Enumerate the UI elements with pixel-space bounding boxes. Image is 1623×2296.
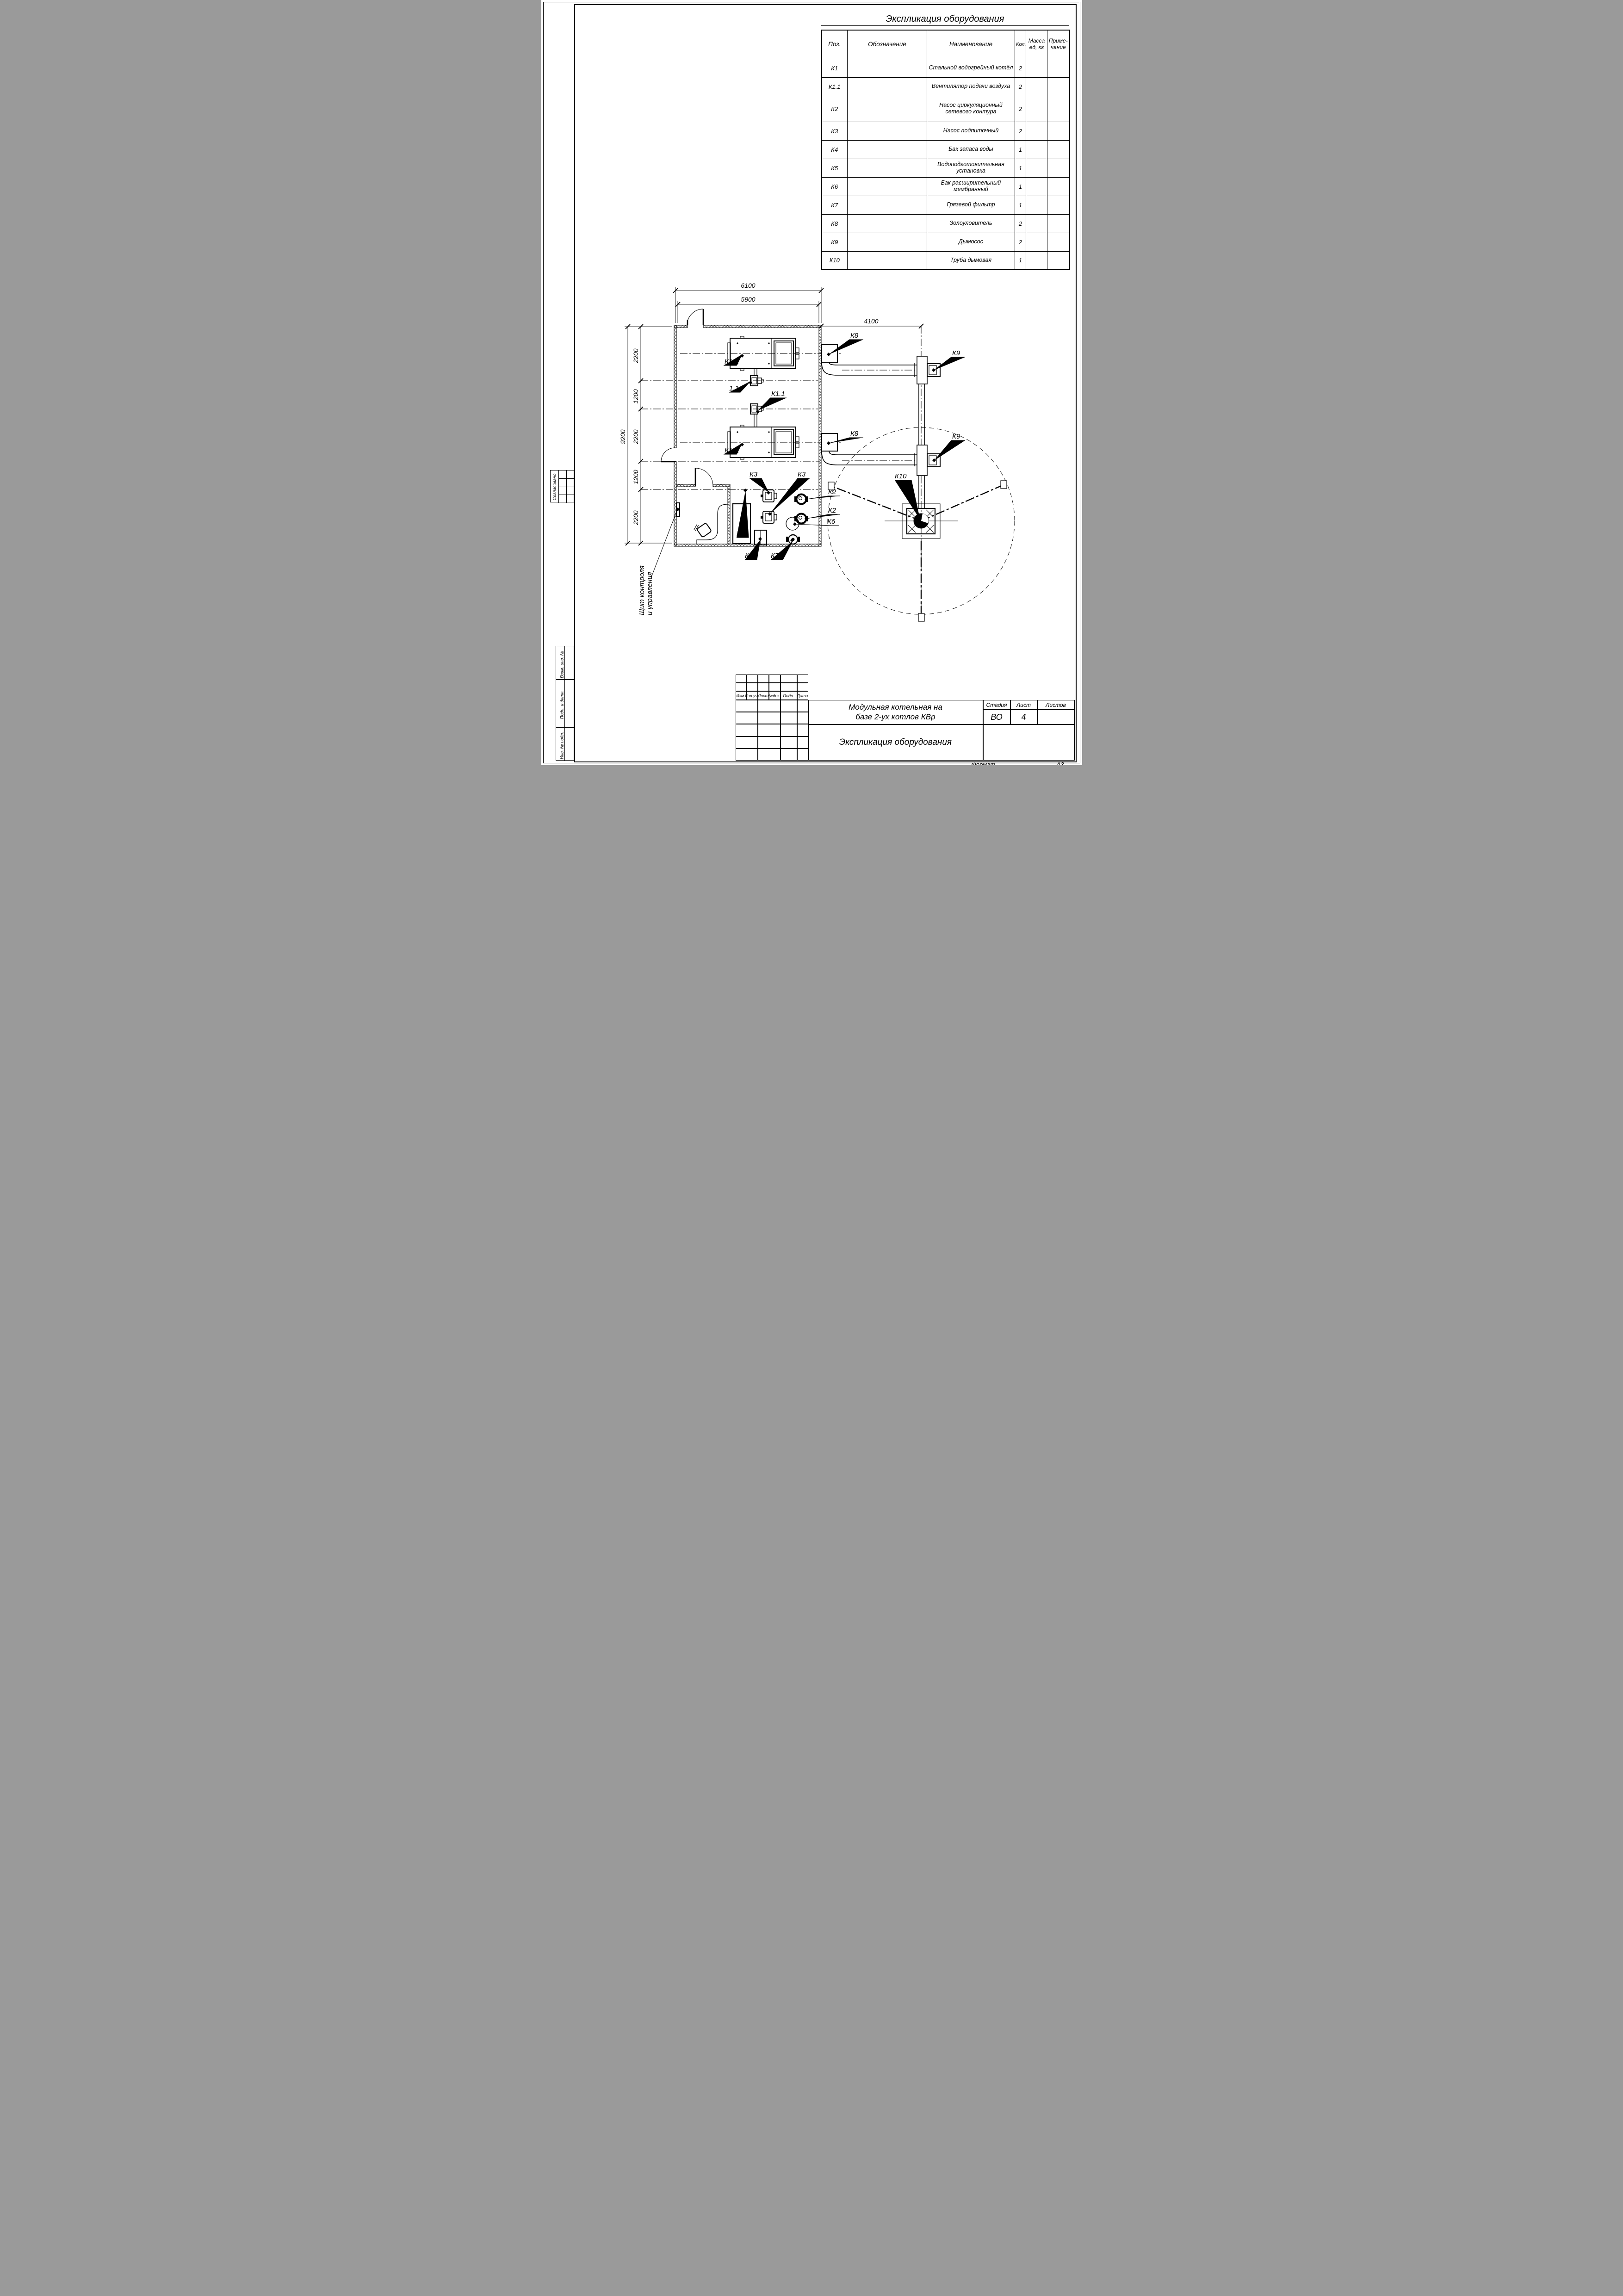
row-note [1047, 96, 1070, 122]
equipment-table-section: Экспликация оборудования Поз. Обозначени… [821, 14, 1069, 270]
table-row: К5Водоподготовительная установка1 [822, 159, 1070, 177]
drawing-sheet: 6100 5900 4100 9200 2200 1200 2200 1200 … [541, 0, 1082, 765]
table-row: К9Дымосос2 [822, 233, 1070, 251]
row-pos: К1 [822, 59, 848, 77]
row-pos: К8 [822, 214, 848, 233]
row-note [1047, 196, 1070, 214]
svg-text:Щит контроля: Щит контроля [638, 565, 646, 615]
smoke-exhauster-2 [917, 445, 940, 476]
smoke-exhauster-1 [917, 356, 940, 384]
row-designation [848, 251, 927, 270]
row-designation [848, 122, 927, 140]
row-pos: К6 [822, 177, 848, 196]
dim-6100: 6100 [741, 282, 755, 289]
partition-horizontal-right [713, 484, 730, 487]
row-mass [1026, 122, 1047, 140]
dim-seg1: 2200 [632, 348, 639, 363]
row-mass [1026, 140, 1047, 159]
sink [692, 504, 728, 544]
row-qty: 2 [1015, 233, 1026, 251]
dim-seg4: 1200 [632, 470, 639, 484]
row-pos: К5 [822, 159, 848, 177]
partition-horizontal-left [676, 484, 695, 487]
dim-5900: 5900 [741, 296, 755, 303]
row-name: Водоподготовительная установка [927, 159, 1015, 177]
boiler-2 [728, 425, 799, 459]
row-note [1047, 233, 1070, 251]
svg-text:и управления: и управления [646, 572, 654, 615]
row-note [1047, 59, 1070, 77]
col-mass-l1: Масса [1028, 37, 1045, 44]
feed-pump-2 [761, 511, 777, 523]
rev-data: Дата [797, 691, 808, 700]
guy-anchor-bottom [918, 613, 924, 621]
partition-vertical [728, 487, 730, 544]
row-name: Стальной водогрейный котёл [927, 59, 1015, 77]
row-mass [1026, 177, 1047, 196]
chimney-symbol [914, 514, 929, 528]
col-note-l1: Приме- [1049, 37, 1068, 44]
row-pos: К10 [822, 251, 848, 270]
stamp-podp-data-label: Подп. и дата [559, 686, 564, 725]
col-pos: Поз. [822, 30, 848, 59]
stamp-podp-data: Подп. и дата [556, 680, 574, 727]
rev-izm: Изм. [736, 691, 746, 700]
label-k1-2: К1 [725, 446, 732, 454]
label-k7: К7 [771, 552, 779, 560]
axis-lines [641, 326, 929, 613]
side-door [661, 448, 675, 462]
control-panel [676, 503, 680, 516]
row-mass [1026, 77, 1047, 96]
col-name: Наименование [927, 30, 1015, 59]
dim-4100: 4100 [864, 317, 878, 325]
expansion-tank [786, 517, 799, 530]
row-designation [848, 177, 927, 196]
table-row: К10Труба дымовая1 [822, 251, 1070, 270]
row-pos: К7 [822, 196, 848, 214]
rev-list: Лист [758, 691, 769, 700]
sheet-value: 4 [1010, 710, 1037, 724]
dim-seg5: 2200 [632, 510, 639, 525]
boiler-1 [728, 336, 799, 371]
table-row: К4Бак запаса воды1 [822, 140, 1070, 159]
row-designation [848, 214, 927, 233]
label-1-1: 1.1 [729, 384, 739, 392]
col-note: Приме- чание [1047, 30, 1070, 59]
project-name-l1: Модульная котельная на [849, 703, 942, 712]
row-mass [1026, 196, 1047, 214]
row-pos: К9 [822, 233, 848, 251]
dim-seg2: 1200 [632, 389, 639, 403]
sheet-label: Лист [1010, 700, 1037, 710]
equipment-table-title: Экспликация оборудования [821, 14, 1069, 26]
row-note [1047, 177, 1070, 196]
row-note [1047, 77, 1070, 96]
row-name: Насос циркуляционный сетевого контура [927, 96, 1015, 122]
row-designation [848, 77, 927, 96]
dim-seg3: 2200 [632, 429, 639, 444]
row-mass [1026, 59, 1047, 77]
row-name: Насос подпиточный [927, 122, 1015, 140]
row-name: Дымосос [927, 233, 1015, 251]
format-value: А3 [1057, 761, 1064, 765]
label-k10: К10 [895, 472, 907, 480]
equipment-table: Поз. Обозначение Наименование Кол. Масса… [821, 30, 1070, 270]
row-note [1047, 159, 1070, 177]
equipment-labels: К1 1.1 К1.1 К1 К8 К8 К9 К9 К10 К3 К3 К2 … [638, 332, 965, 615]
row-mass [1026, 233, 1047, 251]
row-mass [1026, 251, 1047, 270]
row-designation [848, 59, 927, 77]
row-pos: К2 [822, 96, 848, 122]
label-k6: К6 [827, 518, 836, 526]
format-label: Формат [972, 761, 996, 765]
label-k8-1: К8 [850, 332, 859, 340]
dim-9200: 9200 [619, 429, 626, 444]
col-note-l2: чание [1051, 44, 1066, 50]
row-note [1047, 214, 1070, 233]
rev-koluch: Кол.уч. [746, 691, 758, 700]
row-qty: 1 [1015, 177, 1026, 196]
col-mass-l2: ед, кг [1029, 44, 1044, 50]
stamp-inv-podl-label: Инв. № подл. [559, 729, 564, 763]
vestibule-door [695, 468, 713, 486]
row-qty: 2 [1015, 214, 1026, 233]
row-qty: 2 [1015, 122, 1026, 140]
label-k8-2: К8 [850, 430, 859, 438]
row-designation [848, 196, 927, 214]
guy-anchor-right [1001, 481, 1007, 489]
rev-podp: Подп. [781, 691, 797, 700]
flue-duct-2 [822, 451, 917, 466]
stage-label: Стадия [983, 700, 1010, 710]
stamp-soglasovano: Согласовано [550, 470, 574, 502]
label-k2-1: К2 [828, 488, 836, 496]
stamp-vzam-label: Взам. инв. № [559, 649, 564, 681]
sheets-value [1037, 710, 1075, 724]
air-fan-1 [750, 369, 763, 386]
row-name: Труба дымовая [927, 251, 1015, 270]
table-row: К8Золоуловитель2 [822, 214, 1070, 233]
row-note [1047, 251, 1070, 270]
row-mass [1026, 214, 1047, 233]
label-k9-2: К9 [952, 433, 960, 440]
table-row: К6Бак расширительный мембранный1 [822, 177, 1070, 196]
stamp-inv-podl: Инв. № подл. [556, 727, 574, 761]
label-k3-2: К3 [798, 470, 806, 478]
flue-duct-1 [822, 362, 917, 377]
title-block: Изм. Кол.уч. Лист №док. Подп. Дата Модул… [736, 675, 1075, 761]
col-qty: Кол. [1015, 30, 1026, 59]
project-name-l2: базе 2-ух котлов КВр [855, 712, 935, 721]
table-row: К1Стальной водогрейный котёл2 [822, 59, 1070, 77]
dimensions: 6100 5900 4100 9200 2200 1200 2200 1200 … [619, 282, 923, 545]
row-name: Грязевой фильтр [927, 196, 1015, 214]
row-pos: К1.1 [822, 77, 848, 96]
stamp-soglasovano-label: Согласовано [552, 473, 557, 501]
row-mass [1026, 96, 1047, 122]
row-pos: К3 [822, 122, 848, 140]
row-designation [848, 96, 927, 122]
col-mass: Масса ед, кг [1026, 30, 1047, 59]
label-k2-2: К2 [828, 507, 836, 514]
row-designation [848, 233, 927, 251]
row-qty: 1 [1015, 140, 1026, 159]
label-k3-1: К3 [750, 470, 758, 478]
label-k1-1-fan: К1.1 [771, 390, 785, 398]
row-name: Бак запаса воды [927, 140, 1015, 159]
rev-ndok: №док. [769, 691, 781, 700]
label-k1-1: К1 [725, 358, 732, 365]
sheets-label: Листов [1037, 700, 1075, 710]
equipment-table-header-row: Поз. Обозначение Наименование Кол. Масса… [822, 30, 1070, 59]
label-k9-1: К9 [952, 349, 960, 357]
stamp-vzam: Взам. инв. № [556, 646, 574, 680]
row-designation [848, 140, 927, 159]
entrance-door [687, 309, 703, 325]
table-row: К3Насос подпиточный2 [822, 122, 1070, 140]
row-qty: 2 [1015, 59, 1026, 77]
row-pos: К4 [822, 140, 848, 159]
label-k5: К5 [745, 552, 753, 560]
doc-title-side-cell [983, 724, 1075, 761]
format-note: Формат А3 [972, 761, 1064, 765]
col-designation: Обозначение [848, 30, 927, 59]
row-note [1047, 140, 1070, 159]
table-row: К1.1Вентилятор подачи воздуха2 [822, 77, 1070, 96]
row-name: Вентилятор подачи воздуха [927, 77, 1015, 96]
row-qty: 2 [1015, 77, 1026, 96]
row-mass [1026, 159, 1047, 177]
table-row: К7Грязевой фильтр1 [822, 196, 1070, 214]
row-designation [848, 159, 927, 177]
row-qty: 2 [1015, 96, 1026, 122]
label-k4: К4 [737, 530, 744, 538]
row-qty: 1 [1015, 196, 1026, 214]
doc-title: Экспликация оборудования [808, 724, 983, 761]
row-qty: 1 [1015, 159, 1026, 177]
row-name: Золоуловитель [927, 214, 1015, 233]
row-name: Бак расширительный мембранный [927, 177, 1015, 196]
control-panel-note: Щит контроля и управления [638, 565, 654, 615]
project-name: Модульная котельная на базе 2-ух котлов … [808, 700, 983, 724]
row-note [1047, 122, 1070, 140]
doors [661, 309, 713, 486]
row-qty: 1 [1015, 251, 1026, 270]
table-row: К2Насос циркуляционный сетевого контура2 [822, 96, 1070, 122]
stage-value: ВО [983, 710, 1010, 724]
